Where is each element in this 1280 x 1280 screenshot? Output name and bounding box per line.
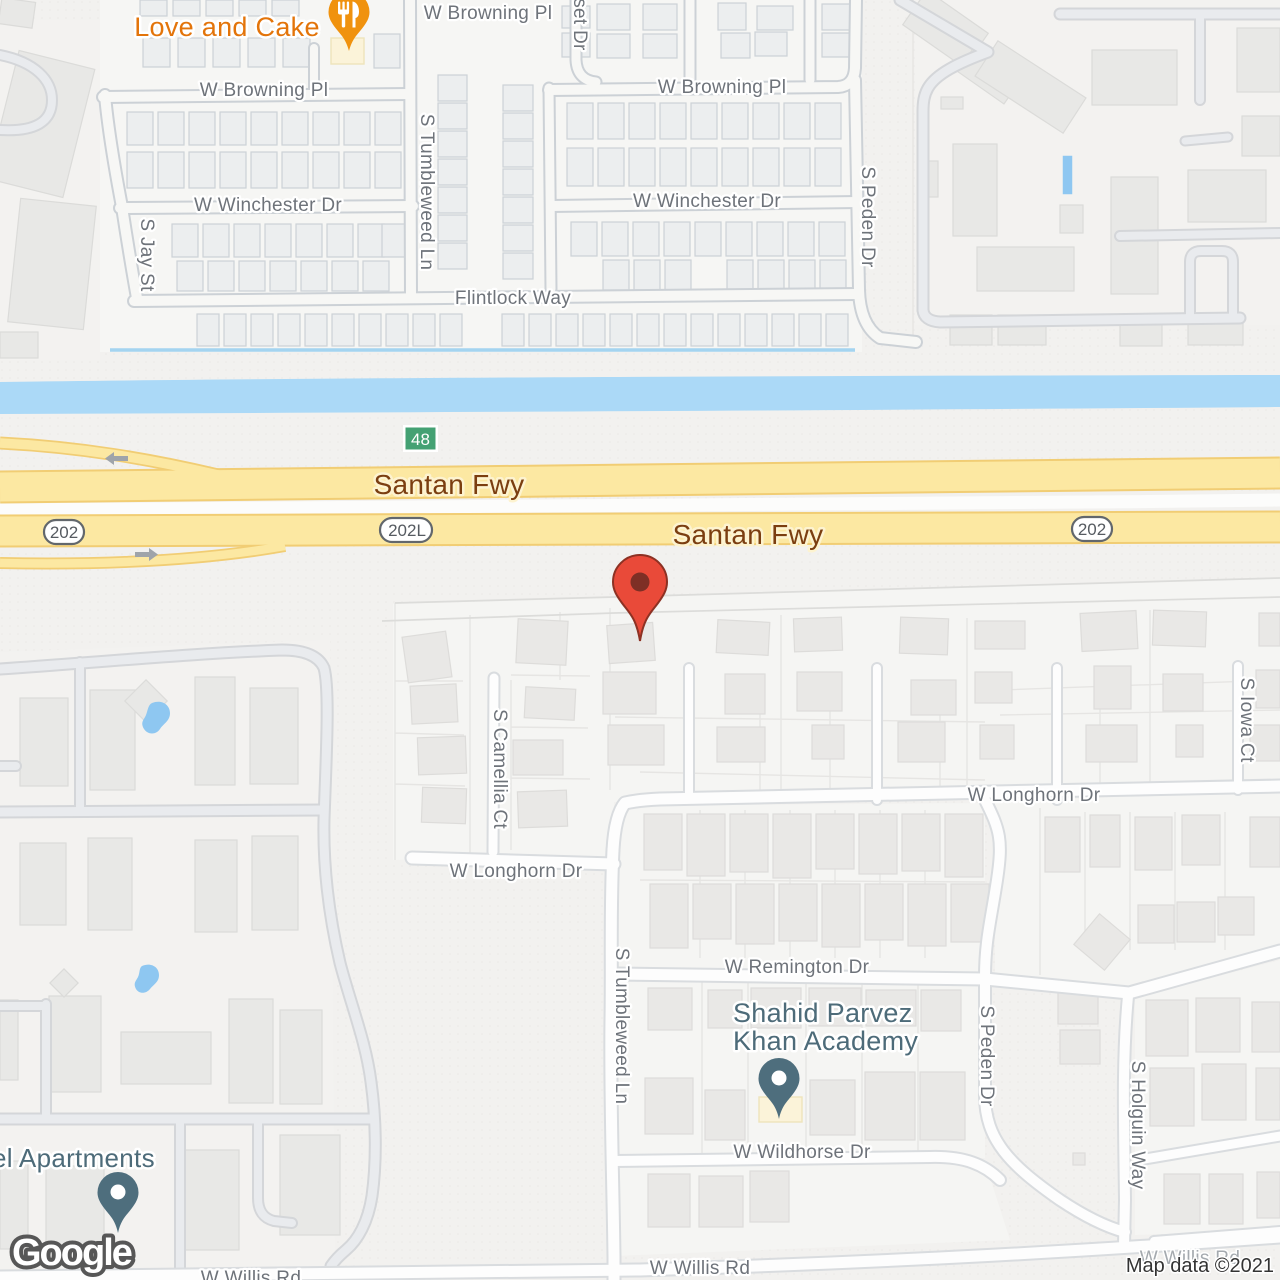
svg-text:W Browning Pl: W Browning Pl <box>424 3 553 24</box>
svg-text:Google: Google <box>12 1232 132 1274</box>
svg-text:202: 202 <box>50 523 78 542</box>
svg-text:W Longhorn Dr: W Longhorn Dr <box>968 785 1101 806</box>
svg-text:Flintlock Way: Flintlock Way <box>455 288 571 309</box>
svg-text:48: 48 <box>411 430 430 449</box>
svg-text:W Longhorn Dr: W Longhorn Dr <box>450 861 583 882</box>
svg-text:W Winchester Dr: W Winchester Dr <box>194 195 342 216</box>
svg-text:202: 202 <box>1078 520 1106 539</box>
svg-text:S Tumbleweed Ln: S Tumbleweed Ln <box>416 114 437 271</box>
svg-text:S Basset Dr: S Basset Dr <box>569 0 590 51</box>
svg-text:Santan Fwy: Santan Fwy <box>673 519 824 550</box>
svg-text:W Browning Pl: W Browning Pl <box>658 77 787 98</box>
svg-text:W Willis Rd: W Willis Rd <box>201 1268 301 1280</box>
svg-text:202L: 202L <box>388 521 426 540</box>
svg-text:W Winchester Dr: W Winchester Dr <box>633 191 781 212</box>
svg-text:el Apartments: el Apartments <box>0 1143 155 1173</box>
svg-text:Santan Fwy: Santan Fwy <box>374 469 525 500</box>
svg-text:Map data ©2021: Map data ©2021 <box>1126 1255 1274 1277</box>
svg-text:W Browning Pl: W Browning Pl <box>200 80 329 101</box>
svg-text:S Holguin Way: S Holguin Way <box>1127 1061 1148 1190</box>
svg-text:Shahid Parvez: Shahid Parvez <box>733 998 913 1028</box>
svg-text:Khan Academy: Khan Academy <box>733 1026 918 1056</box>
svg-text:W Remington Dr: W Remington Dr <box>725 957 870 978</box>
svg-text:S Tumbleweed Ln: S Tumbleweed Ln <box>611 948 632 1105</box>
svg-text:W Wildhorse Dr: W Wildhorse Dr <box>733 1142 871 1163</box>
svg-text:S Iowa Ct: S Iowa Ct <box>1236 677 1257 762</box>
svg-text:Love and Cake: Love and Cake <box>134 12 320 42</box>
svg-text:S Peden Dr: S Peden Dr <box>857 166 878 268</box>
svg-text:S Camellia Ct: S Camellia Ct <box>489 709 510 829</box>
svg-text:S Jay St: S Jay St <box>136 218 157 292</box>
svg-text:W Willis Rd: W Willis Rd <box>650 1258 750 1279</box>
svg-text:S Peden Dr: S Peden Dr <box>976 1005 997 1107</box>
